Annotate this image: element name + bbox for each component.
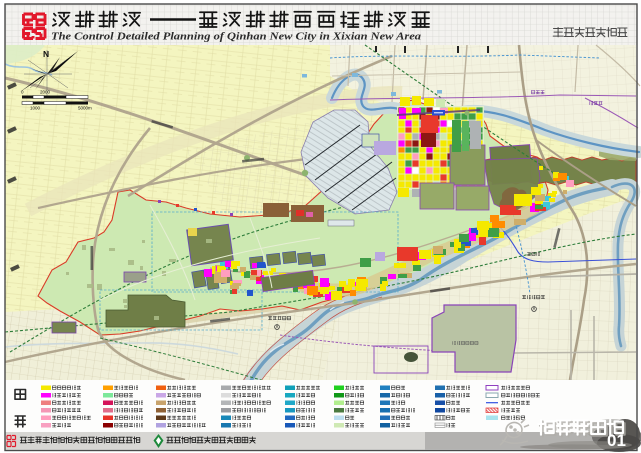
svg-text:01: 01 — [607, 431, 626, 450]
svg-text:The Control Detailed Planning: The Control Detailed Planning of Qinhan … — [51, 32, 421, 43]
